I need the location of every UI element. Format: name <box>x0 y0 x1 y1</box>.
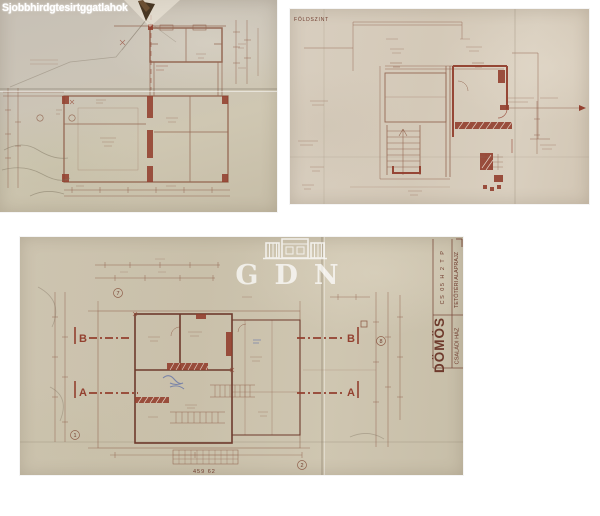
upper-plan-lines <box>3 20 258 196</box>
grid-bubble: 1 <box>73 433 76 439</box>
dimension-note: 459 62 <box>193 469 216 475</box>
paper-creases <box>290 9 589 204</box>
section-a-left: A <box>79 387 87 399</box>
ground-plan-red-marks <box>498 109 512 153</box>
photo-floor-plan-ground[interactable]: FÖLDSZINT <box>290 9 589 204</box>
pencil-scribbles <box>38 287 384 439</box>
photo-collage: Sjobbhirdgtesirtggatlahok <box>0 0 600 516</box>
title-block-building: CSALÁDI HÁZ <box>454 327 461 364</box>
title-block-sheet: TETŐTÉRI ALAPRAJZ <box>453 251 460 308</box>
section-b-left: B <box>79 333 87 345</box>
upper-plan-drawing <box>0 0 277 212</box>
photo-floor-plan-upper[interactable] <box>0 0 277 212</box>
ground-plan-lines <box>304 22 583 187</box>
micro-annotations <box>298 39 558 195</box>
gdn-building-icon <box>263 239 327 259</box>
paper-creases <box>0 20 277 92</box>
grid-bubble: 7 <box>116 291 119 297</box>
section-b-right: B <box>347 333 355 345</box>
gdn-watermark-text: GDN <box>235 260 354 291</box>
ground-plan-wall-fills <box>455 70 512 191</box>
grid-bubble: 2 <box>300 463 303 469</box>
title-block-location: DÖMÖS <box>432 317 447 373</box>
section-markers: B B A A <box>75 321 367 399</box>
attic-wall-fills <box>135 314 232 403</box>
dim-arrow <box>579 105 586 111</box>
attic-plan-drawing: GDN <box>20 237 463 475</box>
upper-plan-walls <box>62 24 228 182</box>
grid-bubble: 8 <box>379 339 382 345</box>
title-block-code: CS 05 H 2 T P <box>440 250 446 305</box>
title-block: CS 05 H 2 T P TETŐTÉRI ALAPRAJZ DÖMÖS CS… <box>432 239 463 373</box>
ground-plan-drawing: FÖLDSZINT <box>290 9 589 204</box>
corner-watermark-text: Sjobbhirdgtesirtggatlahok <box>2 2 128 15</box>
photo-floor-plan-attic[interactable]: GDN <box>20 237 463 475</box>
section-a-right: A <box>347 387 355 399</box>
pencil-scribbles <box>2 145 70 196</box>
torn-paper-corner <box>124 0 180 27</box>
attic-walls <box>135 314 300 443</box>
